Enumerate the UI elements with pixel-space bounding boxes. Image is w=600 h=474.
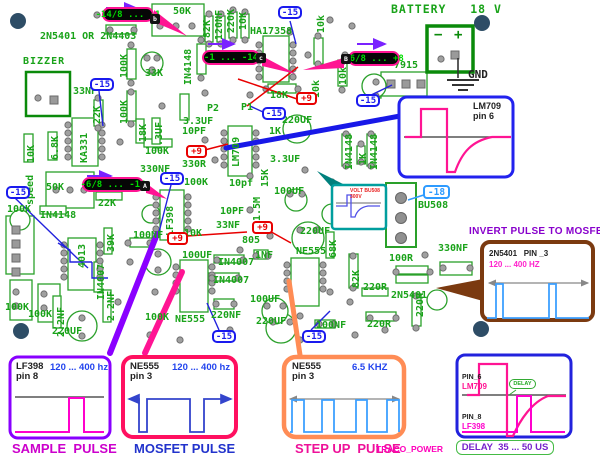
silkscreen-label: 100K [145,147,169,157]
stepup-brand: TRACO_POWER [376,444,443,454]
mosfet-pin-label: pin 3 [130,371,152,382]
silkscreen-label: 2N5401 OR 2N4403 [40,32,136,42]
delay-chip-bottom: LF398 [462,422,485,431]
rail-badge-neg15: -15 [160,172,184,185]
silkscreen-label: 10K [239,12,249,30]
delay-chip-top: LM709 [462,382,487,391]
pin-letter: c [256,53,266,63]
silkscreen-label: 6.8K [51,136,61,160]
stepup-freq-label: 6.5 KHZ [352,362,387,373]
sample-pin-label: pin 8 [16,371,38,382]
silkscreen-label: 33NF [216,221,240,231]
pcb-graphics [0,0,600,474]
silkscreen-label: 100K [145,313,169,323]
silkscreen-label: 2.2NF [107,291,117,321]
silkscreen-label: KA331 [80,133,90,163]
rail-badge-pos9: +9 [167,232,188,245]
mosfet-caption: MOSFET PULSE [134,441,235,456]
delay-pin-top: PIN_6 [462,374,481,381]
silkscreen-label: P2 [207,104,219,114]
lm709-pin-label: pin 6 [473,111,494,121]
sample-caption: SAMPLE PULSE [12,441,117,456]
rail-badge-pos9: +9 [296,92,317,105]
silkscreen-label: 100UF [182,251,212,261]
silkscreen-label: 100K [28,310,52,320]
silkscreen-label: 220UF [256,317,286,327]
silkscreen-label: 1.5M [253,197,263,221]
rail-badge-neg15: -15 [302,330,326,343]
silkscreen-label: HA17358 [250,27,292,37]
delay-tag: DELAY [509,379,536,389]
volt-divider-label-2: 300V [350,194,362,200]
silkscreen-label: 10K [27,145,37,163]
invert-chip-label: 2N5401 PIN _3 [489,249,548,258]
silkscreen-label: 10pf [229,179,253,189]
silkscreen-label: LM709 [232,137,242,167]
silkscreen-label: 1K [269,127,281,137]
silkscreen-label: 4013 [78,244,88,268]
silkscreen-label: 50K [46,183,64,193]
silkscreen-label: IN4007 [213,276,249,286]
rail-badge-neg18: -18 [423,185,450,199]
silkscreen-label: 100UF [274,187,304,197]
rail-badge-neg15: -15 [356,94,380,107]
silkscreen-label: 100K [7,205,31,215]
silkscreen-label: 220R [363,283,387,293]
delay-pin-bottom: PIN_8 [462,414,481,421]
pin-letter: B [341,54,351,64]
silkscreen-label: 82K [352,270,362,288]
silkscreen-label: 100UF [250,295,280,305]
lm709-chip-label: LM709 [473,101,501,111]
silkscreen-label: IN4148 [370,134,380,170]
silkscreen-label: 330R [182,160,206,170]
silkscreen-label: NE555 [296,247,326,257]
silkscreen-label: IN4148 [345,134,355,170]
silkscreen-label: 10PF [220,207,244,217]
silkscreen-label: 100K [120,54,130,78]
rail-badge-pos9: +9 [186,145,207,158]
silkscreen-label: 220R [416,293,426,317]
silkscreen-label: IN4148 [184,49,194,85]
rail-badge-neg15: -15 [262,107,286,120]
silkscreen-label: 10k [339,67,349,85]
silkscreen-label: 120NF [215,10,225,40]
rail-badge-neg15: -15 [6,186,30,199]
rail-badge-neg15: -15 [90,78,114,91]
silkscreen-label: 220UF [282,116,312,126]
silkscreen-label: 100NF [133,231,163,241]
voltage-badge: -14/8 ... -1 [102,7,154,22]
silkscreen-label: 220UF [52,327,82,337]
mosfet-freq-label: 120 ... 400 hz [172,362,230,373]
silkscreen-label: 1NF [255,251,273,261]
silkscreen-label: BIZZER [23,57,65,67]
silkscreen-label: 50K [173,7,191,17]
voltage-badge: +6/8 ... +8 [348,51,400,66]
silkscreen-label: 18K [139,124,149,142]
pin-letter: b [150,14,160,24]
pin-letter: A [140,181,150,191]
silkscreen-label: 10PF [182,127,206,137]
silkscreen-label: 10k [317,15,327,33]
rail-badge-pos9: +9 [252,221,273,234]
voltage-badge: -6/8 ... -14 [82,177,144,192]
pcb-annotation-diagram: 50K 2N5401 OR 2N4403 BIZZER 33NF 100K 10… [0,0,600,474]
delay-caption: DELAY 35 ... 50 US [456,440,554,455]
sample-freq-label: 120 ... 400 hz [50,362,108,373]
silkscreen-label: 220R [367,320,391,330]
silkscreen-label: 82K [203,20,213,38]
invert-heading: INVERT PULSE TO MOSFET [469,226,600,237]
silkscreen-label: IN4007 [218,258,254,268]
silkscreen-label: 33K [145,69,163,79]
silkscreen-label: 100K [120,100,130,124]
silkscreen-label: 68K [329,240,339,258]
silkscreen-label: NE555 [175,315,205,325]
silkscreen-label: 805 [242,236,260,246]
silkscreen-label: 22K [93,106,103,124]
battery-plus: + [454,30,462,40]
silkscreen-label: BU508 [418,201,448,211]
silkscreen-label: 220K [227,9,237,33]
silkscreen-label: 18K [270,91,288,101]
silkscreen-label: 220UF [300,227,330,237]
silkscreen-label: IN4148 [40,211,76,221]
battery-label: BATTERY 18 V [391,4,502,14]
silkscreen-label: 220NF [211,311,241,321]
invert-freq-label: 120 ... 400 HZ [489,260,540,269]
battery-minus: − [434,30,442,40]
silkscreen-label: 3.3UF [270,155,300,165]
silkscreen-label: 100R [389,254,413,264]
silkscreen-label: 1K [359,153,369,165]
silkscreen-label: 22K [98,199,116,209]
silkscreen-label: 330NF [438,244,468,254]
voltage-badge: -1 ... -14 [202,50,260,65]
silkscreen-label: 100K [5,303,29,313]
stepup-pin-label: pin 3 [292,371,314,382]
silkscreen-label: 39K [107,234,117,252]
rail-badge-neg15: -15 [278,6,302,19]
silkscreen-label: 15K [261,169,271,187]
silkscreen-label: P1 [241,103,253,113]
silkscreen-label: 100K [184,178,208,188]
gnd-label: GND [468,70,488,80]
rail-badge-neg15: -15 [212,330,236,343]
